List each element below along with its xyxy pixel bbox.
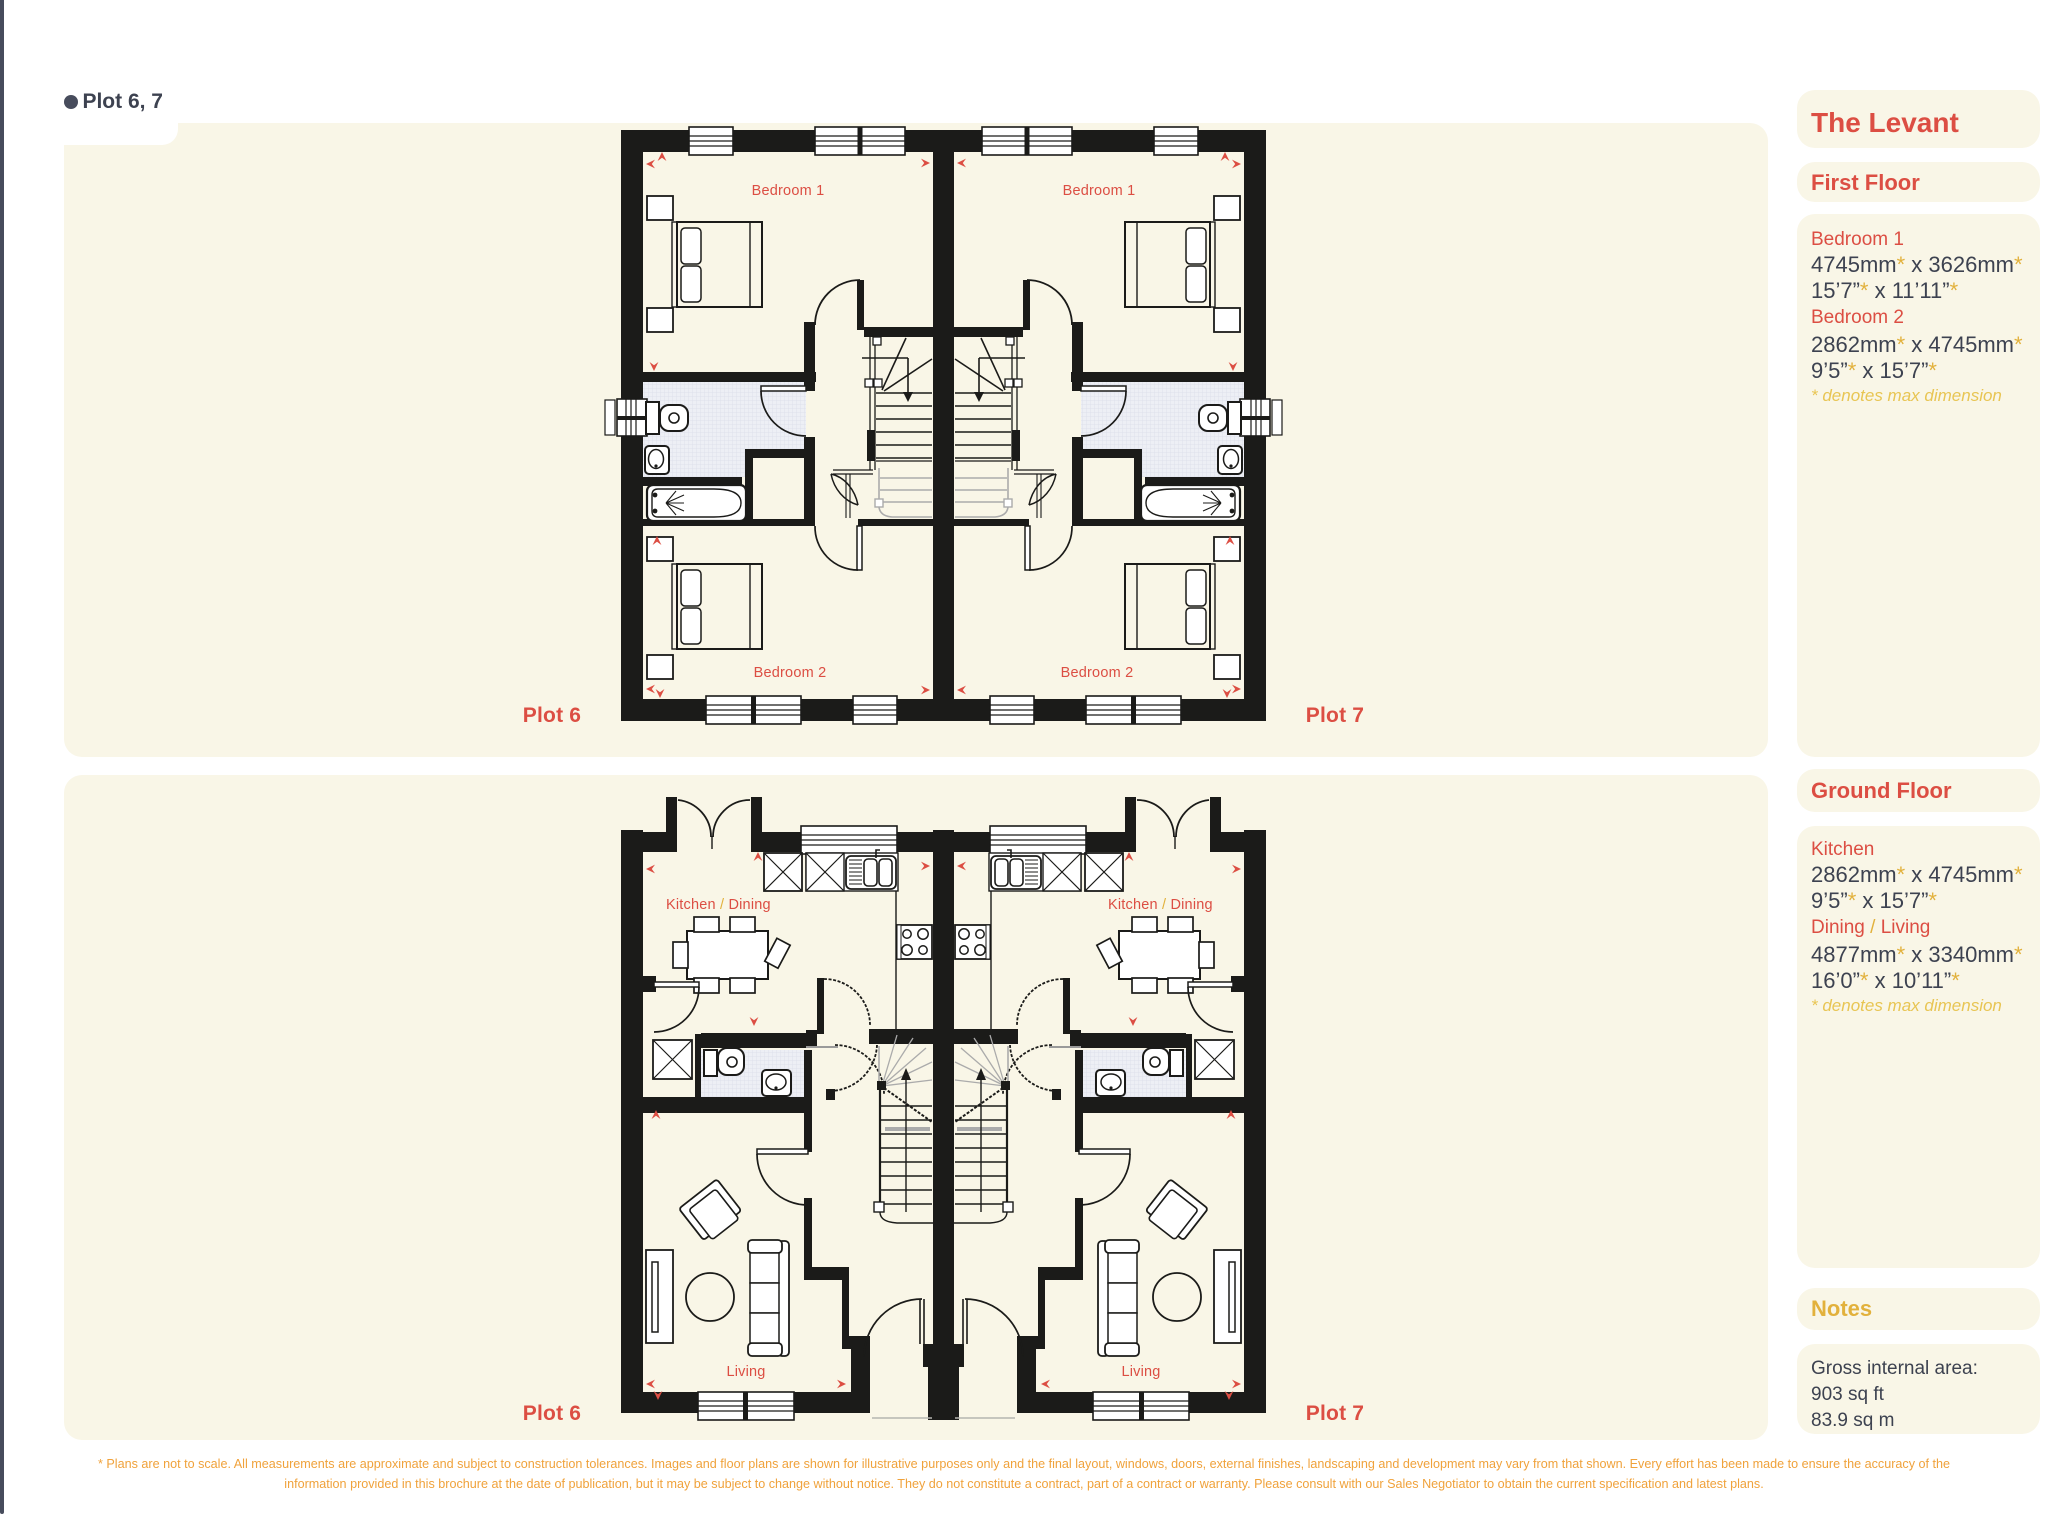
svg-text:Bedroom 2: Bedroom 2 [1061,665,1134,681]
svg-text:Plot 7: Plot 7 [1306,1402,1364,1425]
svg-text:Bedroom 1: Bedroom 1 [1063,183,1136,199]
svg-text:Bedroom 2: Bedroom 2 [754,665,827,681]
svg-text:Kitchen / Dining: Kitchen / Dining [666,897,771,913]
svg-text:Plot 6: Plot 6 [523,704,581,727]
svg-text:Living: Living [726,1364,765,1380]
svg-text:Plot 6: Plot 6 [523,1402,581,1425]
svg-text:Bedroom 1: Bedroom 1 [752,183,825,199]
svg-text:Living: Living [1121,1364,1160,1380]
svg-text:Plot 7: Plot 7 [1306,704,1364,727]
svg-text:Kitchen / Dining: Kitchen / Dining [1108,897,1213,913]
